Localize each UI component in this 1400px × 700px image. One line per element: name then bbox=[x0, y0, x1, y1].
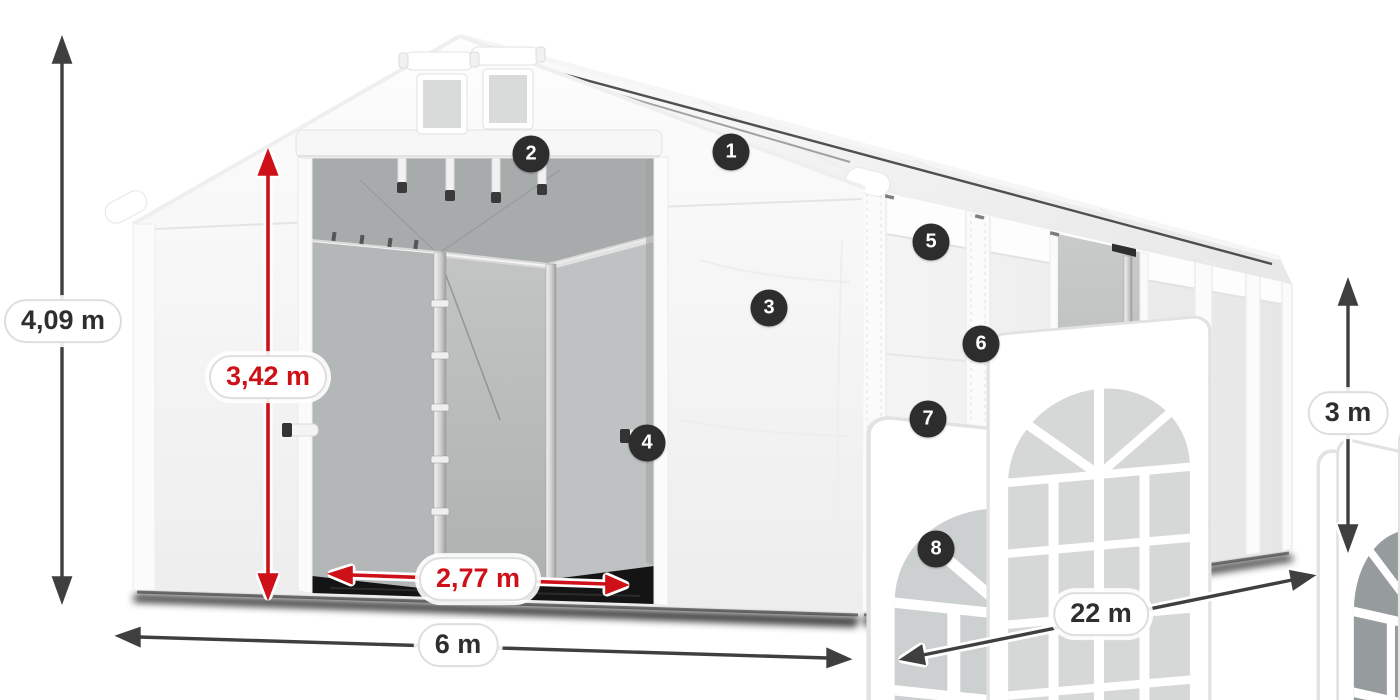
marker-5[interactable]: 5 bbox=[913, 224, 950, 261]
inner-doorway-pole bbox=[546, 264, 556, 580]
dim-side-height-label: 3 m bbox=[1308, 391, 1389, 435]
dim-entrance-width-label: 2,77 m bbox=[419, 557, 537, 601]
marker-3[interactable]: 3 bbox=[751, 290, 788, 327]
marker-7[interactable]: 7 bbox=[910, 401, 947, 438]
marker-8[interactable]: 8 bbox=[918, 531, 955, 568]
dim-length-label: 22 m bbox=[1053, 592, 1149, 636]
dim-total-height-label: 4,09 m bbox=[4, 299, 122, 343]
interior-far-wall bbox=[556, 240, 654, 578]
side-windows bbox=[1318, 421, 1400, 700]
tent-diagram: 4,09 m 3,42 m 2,77 m 6 m 22 m 3 m 1 2 3 … bbox=[0, 0, 1400, 700]
marker-4[interactable]: 4 bbox=[629, 425, 666, 462]
rolled-door-band bbox=[296, 130, 662, 158]
marker-2[interactable]: 2 bbox=[513, 136, 550, 173]
interior-far-window bbox=[988, 316, 1210, 700]
tent-illustration bbox=[0, 0, 1400, 700]
marker-6[interactable]: 6 bbox=[963, 326, 1000, 363]
dim-width-label: 6 m bbox=[418, 623, 499, 667]
marker-1[interactable]: 1 bbox=[713, 134, 750, 171]
dim-entrance-height-label: 3,42 m bbox=[209, 355, 327, 399]
interior-left-wall bbox=[312, 242, 438, 590]
